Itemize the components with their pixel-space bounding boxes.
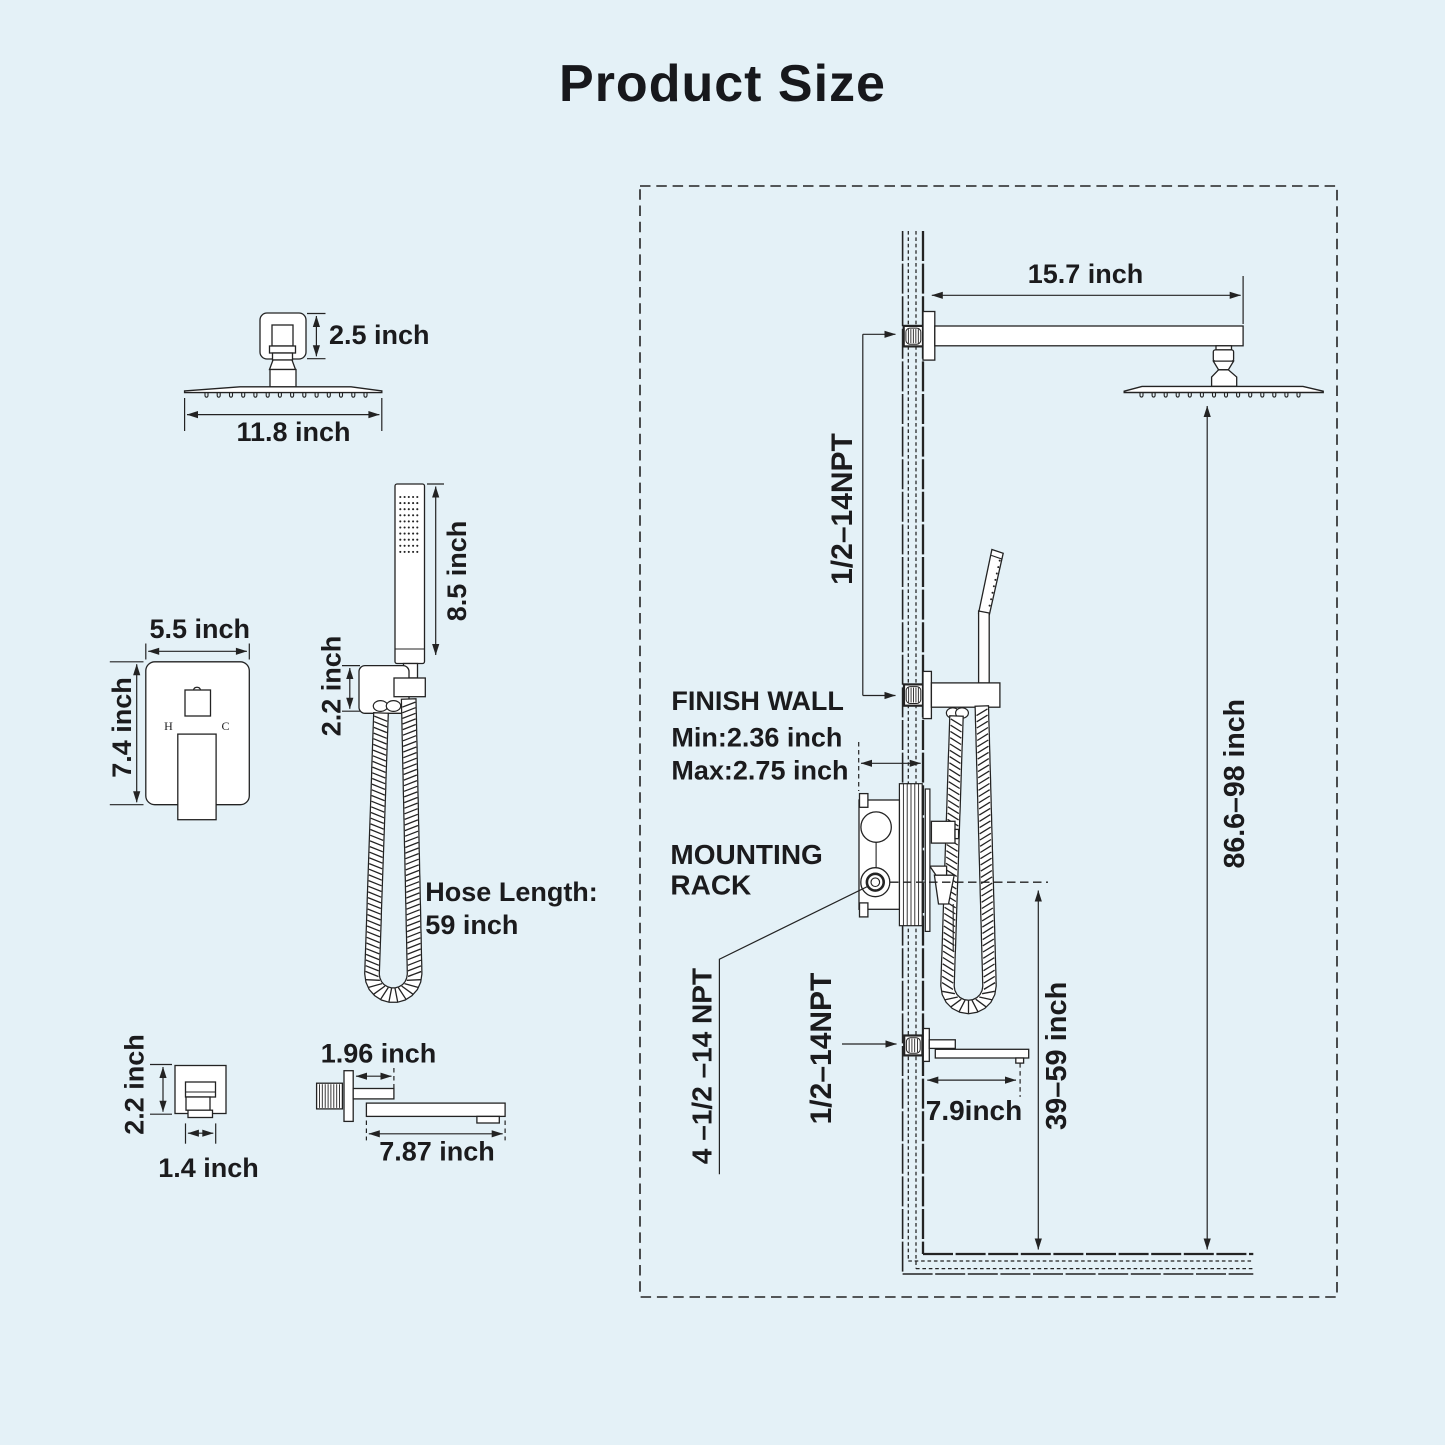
svg-text:RACK: RACK: [670, 870, 751, 901]
svg-text:2.2 inch: 2.2 inch: [317, 636, 347, 737]
svg-text:2.2 inch: 2.2 inch: [120, 1034, 150, 1135]
svg-text:4 –1/2 –14 NPT: 4 –1/2 –14 NPT: [687, 968, 718, 1164]
svg-text:FINISH WALL: FINISH WALL: [671, 686, 843, 716]
svg-text:H: H: [164, 719, 173, 733]
svg-text:1/2–14NPT: 1/2–14NPT: [805, 973, 838, 1125]
svg-text:8.5 inch: 8.5 inch: [442, 521, 472, 622]
svg-text:1.96 inch: 1.96 inch: [321, 1039, 437, 1069]
svg-text:Hose Length:: Hose Length:: [425, 877, 598, 907]
svg-text:1/2–14NPT: 1/2–14NPT: [826, 433, 859, 585]
svg-text:MOUNTING: MOUNTING: [670, 839, 822, 870]
svg-text:2.5 inch: 2.5 inch: [329, 320, 430, 350]
svg-text:C: C: [221, 719, 229, 733]
svg-text:7.4 inch: 7.4 inch: [107, 677, 137, 778]
svg-text:Min:2.36 inch: Min:2.36 inch: [671, 723, 842, 753]
svg-text:39–59 inch: 39–59 inch: [1041, 982, 1073, 1130]
svg-text:7.9inch: 7.9inch: [926, 1095, 1022, 1126]
svg-text:7.87 inch: 7.87 inch: [379, 1137, 495, 1167]
svg-text:86.6–98 inch: 86.6–98 inch: [1219, 699, 1251, 869]
svg-text:59 inch: 59 inch: [425, 910, 518, 940]
svg-text:Max:2.75 inch: Max:2.75 inch: [671, 756, 848, 786]
svg-text:11.8 inch: 11.8 inch: [236, 417, 350, 447]
svg-text:5.5 inch: 5.5 inch: [150, 614, 251, 644]
svg-text:1.4 inch: 1.4 inch: [158, 1153, 259, 1183]
svg-text:15.7 inch: 15.7 inch: [1028, 259, 1144, 289]
